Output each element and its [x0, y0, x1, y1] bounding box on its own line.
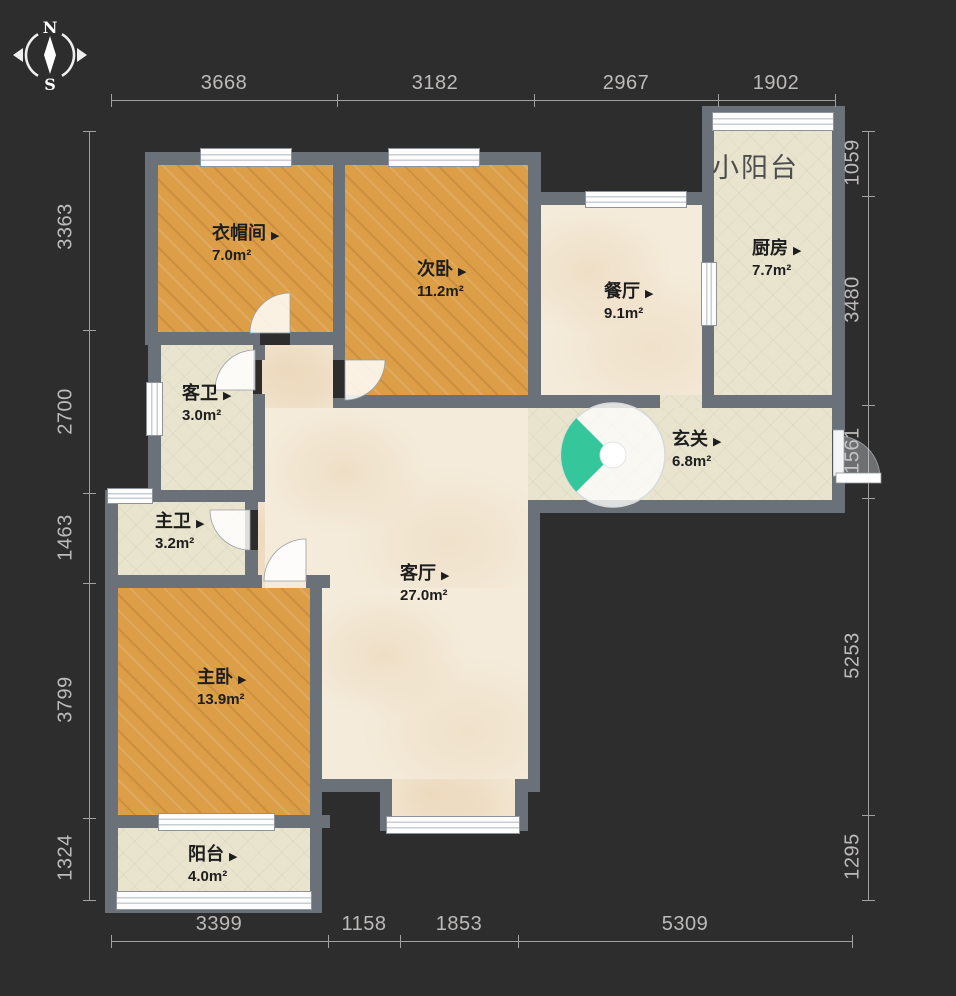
room-name: 次卧: [417, 259, 453, 279]
detail-arrow-icon: ▶: [441, 570, 449, 582]
room-area: 27.0m²: [400, 586, 449, 606]
door-arc-cloakroom: [250, 293, 290, 333]
detail-arrow-icon: ▶: [238, 674, 246, 686]
room-name: 客卫: [182, 383, 218, 403]
detail-arrow-icon: ▶: [793, 245, 801, 257]
entry-fan-marker: [561, 403, 665, 507]
room-area: 3.2m²: [155, 534, 204, 554]
detail-arrow-icon: ▶: [223, 390, 231, 402]
room-label-cloakroom[interactable]: 衣帽间▶ 7.0m²: [212, 222, 279, 265]
detail-arrow-icon: ▶: [645, 288, 653, 300]
room-area: 7.0m²: [212, 246, 279, 266]
detail-arrow-icon: ▶: [229, 851, 237, 863]
room-label-master-bath[interactable]: 主卫▶ 3.2m²: [155, 510, 204, 553]
room-name: 主卫: [155, 511, 191, 531]
room-label-master-bedroom[interactable]: 主卧▶ 13.9m²: [197, 666, 246, 709]
compass-needle-icon: [44, 36, 56, 74]
compass-north-label: N: [43, 18, 58, 37]
room-name: 主卧: [197, 667, 233, 687]
room-name: 餐厅: [604, 281, 640, 301]
detail-arrow-icon: ▶: [196, 518, 204, 530]
room-label-guest-bath[interactable]: 客卫▶ 3.0m²: [182, 382, 231, 425]
room-label-entrance[interactable]: 玄关▶ 6.8m²: [672, 428, 721, 471]
detail-arrow-icon: ▶: [713, 436, 721, 448]
room-label-dining[interactable]: 餐厅▶ 9.1m²: [604, 280, 653, 323]
room-area: 4.0m²: [188, 867, 237, 887]
room-area: 3.0m²: [182, 406, 231, 426]
door-arc-second-bedroom: [345, 360, 385, 400]
room-label-small-balcony: 小阳台: [712, 146, 799, 185]
room-name: 阳台: [188, 844, 224, 864]
compass-west-arrow-icon: [13, 48, 23, 62]
room-area: 11.2m²: [417, 282, 466, 302]
room-label-living[interactable]: 客厅▶ 27.0m²: [400, 562, 449, 605]
room-label-second-bedroom[interactable]: 次卧▶ 11.2m²: [417, 258, 466, 301]
room-area: 6.8m²: [672, 452, 721, 472]
room-label-balcony[interactable]: 阳台▶ 4.0m²: [188, 843, 237, 886]
compass-ring: [26, 34, 38, 76]
door-arc-master-bath: [210, 510, 250, 550]
compass-south-label: S: [44, 75, 56, 94]
overlay-graphics: N S: [0, 0, 956, 996]
room-area: 13.9m²: [197, 690, 246, 710]
compass-east-arrow-icon: [77, 48, 87, 62]
room-name: 玄关: [672, 429, 708, 449]
room-name: 客厅: [400, 563, 436, 583]
room-area: 7.7m²: [752, 261, 801, 281]
entry-fan-dot: [600, 442, 626, 468]
entry-door-leaf: [836, 473, 881, 483]
detail-arrow-icon: ▶: [458, 266, 466, 278]
detail-arrow-icon: ▶: [271, 230, 279, 242]
floorplan-canvas: N S 衣帽间▶ 7.0m² 次卧▶ 11.2m² 餐厅▶ 9.1m²: [0, 0, 956, 996]
door-arc-master-bedroom: [264, 539, 306, 581]
room-name: 厨房: [752, 238, 788, 258]
room-label-kitchen[interactable]: 厨房▶ 7.7m²: [752, 237, 801, 280]
entry-door-frame: [833, 430, 844, 476]
compass: N S: [13, 18, 87, 94]
room-area: 9.1m²: [604, 304, 653, 324]
room-name: 衣帽间: [212, 223, 266, 243]
compass-ring: [62, 34, 74, 76]
